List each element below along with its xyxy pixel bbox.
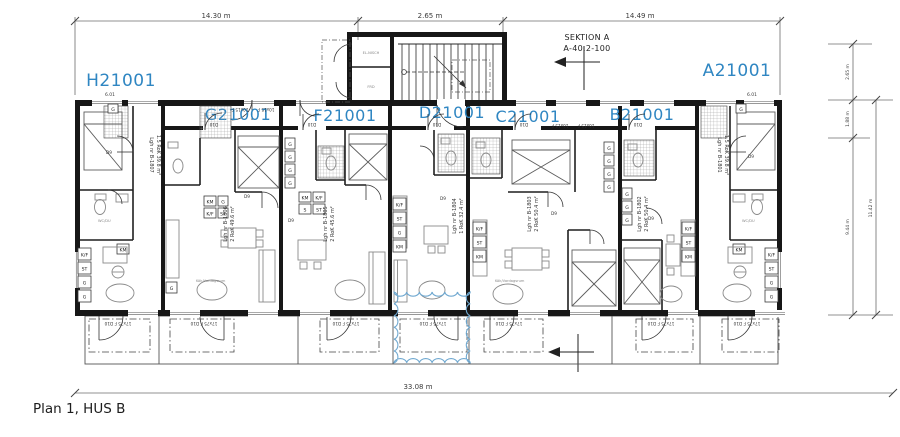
- unit-info-lgh: Lgh nr B-1806: [223, 206, 229, 242]
- dim-bottom: 33.08 m: [403, 383, 432, 391]
- room-label: Kök/Vardagsrum: [196, 279, 226, 283]
- cabinet-label: K/F: [476, 227, 484, 233]
- balcony-door-swings: [99, 316, 752, 340]
- unit-info-lgh: Lgh nr B-1802: [637, 196, 643, 232]
- cabinet-label: G: [607, 146, 611, 152]
- room-label: WC/DU: [742, 219, 755, 223]
- cabinet-label: K/F: [206, 212, 214, 218]
- unit-info-lgh: Lgh nr B-1807: [148, 137, 154, 173]
- balcony-door-label: 17x75 F D10: [733, 321, 760, 326]
- balcony-band: 17x75 F D10 17x75 F D10 17x75 F D10 17x7…: [85, 316, 779, 364]
- door-label: D10: [432, 122, 441, 127]
- window-label: 10x15 F: [551, 123, 568, 128]
- cabinet-label: KM: [302, 196, 309, 202]
- cabinet-label: K/F: [685, 227, 693, 233]
- cabinet-label: G: [770, 295, 774, 301]
- unit-info-size: 1.5 RoK 39.8 m²: [723, 135, 729, 175]
- cabinet-label: G: [83, 281, 87, 287]
- section-marker-bottom: [548, 334, 594, 372]
- cabinet-label: K/F: [768, 253, 776, 259]
- cabinet-label: G: [398, 231, 402, 237]
- unit-B21001: D10 G G G K/F ST KM D9 Lgh nr B-1802 2 R…: [620, 114, 695, 310]
- balcony-door-label: 17x75 F D10: [495, 321, 522, 326]
- door-label: D10: [633, 122, 642, 127]
- cabinet-label: G: [288, 142, 292, 148]
- unit-D21001: D10 K/F ST G KM D9 Lgh nr B-1804 1 RoK 3…: [393, 114, 466, 302]
- cabinet-label: K/F: [396, 203, 404, 209]
- unit-info-size: 1.5 RoK 39.8 m²: [155, 135, 161, 175]
- stair-porch: [322, 40, 350, 102]
- door-label: D9: [440, 196, 446, 201]
- cabinet-label: ST: [397, 217, 403, 223]
- cabinet-label: K/F: [315, 196, 323, 202]
- door-label: D9: [244, 194, 250, 199]
- room-label: Kök/Vardagsrum: [495, 279, 525, 283]
- unit-info-lgh: Lgh nr B-1801: [716, 137, 722, 173]
- cabinet-label: KM: [207, 200, 214, 206]
- unit-info-size: 2 RoK 50.4 m²: [534, 196, 540, 232]
- building-shell: [74, 99, 785, 317]
- unit-labels: H21001 G21001 F21001 D21001 C21001 B2100…: [86, 61, 771, 126]
- gable-windows: [74, 252, 783, 288]
- cabinet-label: G: [221, 200, 225, 206]
- unit-A21001: G D9 KM K/F ST G G Lgh nr B-1801 1.5 RoK…: [701, 104, 778, 302]
- door-label: D9: [551, 211, 557, 216]
- door-label: D9: [288, 218, 294, 223]
- unit-H21001: G D9 KM K/F ST G G Lgh nr B-1807 1.5 RoK…: [78, 104, 161, 302]
- unit-C21001: D10 G G G G K/F ST KM D9 Lgh nr B-1803 2…: [470, 114, 616, 310]
- window-label: 10x15 F: [577, 123, 594, 128]
- dim-right-2: 1.88 m: [845, 111, 851, 127]
- dining-table: [298, 240, 326, 269]
- unit-label-F21001: F21001: [313, 106, 376, 125]
- unit-info-size: 2 RoK 50.4 m²: [644, 196, 650, 232]
- dim-right-4: 11.42 m: [868, 199, 874, 218]
- unit-info-size: 2 RoK 45.6 m²: [330, 206, 336, 242]
- door-label: D9: [106, 150, 112, 155]
- dim-mark-left: 6.01: [105, 92, 115, 98]
- door-label: D10: [209, 122, 218, 127]
- unit-info-lgh: Lgh nr B-1804: [452, 198, 458, 234]
- cabinet-label: S: [304, 208, 307, 214]
- cabinet-label: G: [625, 205, 629, 211]
- unit-label-D21001: D21001: [419, 103, 485, 122]
- entry-strip-wall: [165, 126, 695, 130]
- unit-info-size: 2 RoK 49.6 m²: [230, 206, 236, 242]
- cabinet-label: KM: [685, 255, 692, 261]
- cabinet-label: G: [770, 281, 774, 287]
- room-label: WC/DU: [98, 219, 111, 223]
- unit-info-lgh: Lgh nr B-1803: [527, 196, 533, 232]
- cabinet-label: G: [739, 107, 743, 113]
- cabinet-label: KM: [396, 245, 403, 251]
- unit-F21001: D10 G G G G KM K/F S ST D9 Lgh nr B-1805…: [285, 114, 387, 304]
- cabinet-label: K/F: [81, 253, 89, 259]
- dim-right-3: 9.44 m: [845, 219, 851, 235]
- section-ref: A-40.2-100: [563, 44, 610, 53]
- unit-info-lgh: Lgh nr B-1805: [323, 206, 329, 242]
- cabinet-label: G: [288, 155, 292, 161]
- cabinet-label: G: [607, 159, 611, 165]
- balcony-door-label: 17x75 F D10: [332, 321, 359, 326]
- cabinet-label: G: [607, 185, 611, 191]
- stair-room-label-top: EL-NISCH: [363, 51, 380, 55]
- balcony-door-label: 17x75 F D10: [104, 321, 131, 326]
- unit-G21001: D10 KM G K/F ST G D9 Lgh nr B-1806 2 RoK…: [165, 106, 279, 302]
- section-marker-top: SEKTION A A-40.2-100: [554, 33, 611, 90]
- cabinet-label: KM: [120, 248, 127, 254]
- balcony-door-label: 17x75 F D10: [190, 321, 217, 326]
- door-label: D9: [748, 154, 754, 159]
- balcony-door-label: 17x75 F D10: [647, 321, 674, 326]
- section-arrow-icon: [554, 57, 566, 67]
- unit-label-A21001: A21001: [703, 61, 772, 81]
- floor-plan-drawing: 14.30 m 2.65 m 14.49 m 2.65 m 1.88 m 9.4…: [0, 0, 900, 437]
- stair-room-label-bottom: FRD: [367, 85, 375, 89]
- cabinet-label: ST: [316, 208, 322, 214]
- cabinet-label: ST: [82, 267, 88, 273]
- cabinet-label: G: [111, 107, 115, 113]
- window-label: 10x15 F: [257, 107, 274, 112]
- door-label: D10: [307, 122, 316, 127]
- dim-top-left: 14.30 m: [201, 12, 230, 20]
- cabinet-label: G: [625, 192, 629, 198]
- cabinet-label: KM: [476, 255, 483, 261]
- unit-label-H21001: H21001: [86, 71, 156, 91]
- section-name: SEKTION A: [564, 33, 609, 42]
- stair-walk-line: [402, 56, 466, 88]
- cabinet-label: G: [625, 218, 629, 224]
- cabinet-label: ST: [769, 267, 775, 273]
- dining-table: [505, 248, 549, 270]
- cabinet-label: ST: [477, 241, 483, 247]
- dining-table: [424, 226, 448, 253]
- cabinet-label: KM: [736, 248, 743, 254]
- unit-info-size: 1 RoK 32.4 m²: [459, 198, 465, 234]
- cabinet-label: G: [288, 181, 292, 187]
- dim-top-right: 14.49 m: [625, 12, 654, 20]
- drawing-title: Plan 1, HUS B: [33, 401, 125, 417]
- cabinet-label: ST: [686, 241, 692, 247]
- floor-plan-sheet: 14.30 m 2.65 m 14.49 m 2.65 m 1.88 m 9.4…: [0, 0, 900, 437]
- cabinet-label: G: [607, 172, 611, 178]
- cabinet-label: G: [83, 295, 87, 301]
- dining-table: [666, 235, 680, 275]
- balcony-door-label: 17x75 F D10: [419, 321, 446, 326]
- dim-top-mid: 2.65 m: [418, 12, 443, 20]
- dim-right-1: 2.65 m: [845, 64, 851, 80]
- window-label: 10x15 F: [231, 107, 248, 112]
- cabinet-label: G: [170, 286, 174, 292]
- cabinet-label: G: [288, 168, 292, 174]
- section-arrow-icon: [548, 347, 560, 357]
- dim-mark-right: 6.01: [747, 92, 757, 98]
- door-label: D10: [519, 122, 528, 127]
